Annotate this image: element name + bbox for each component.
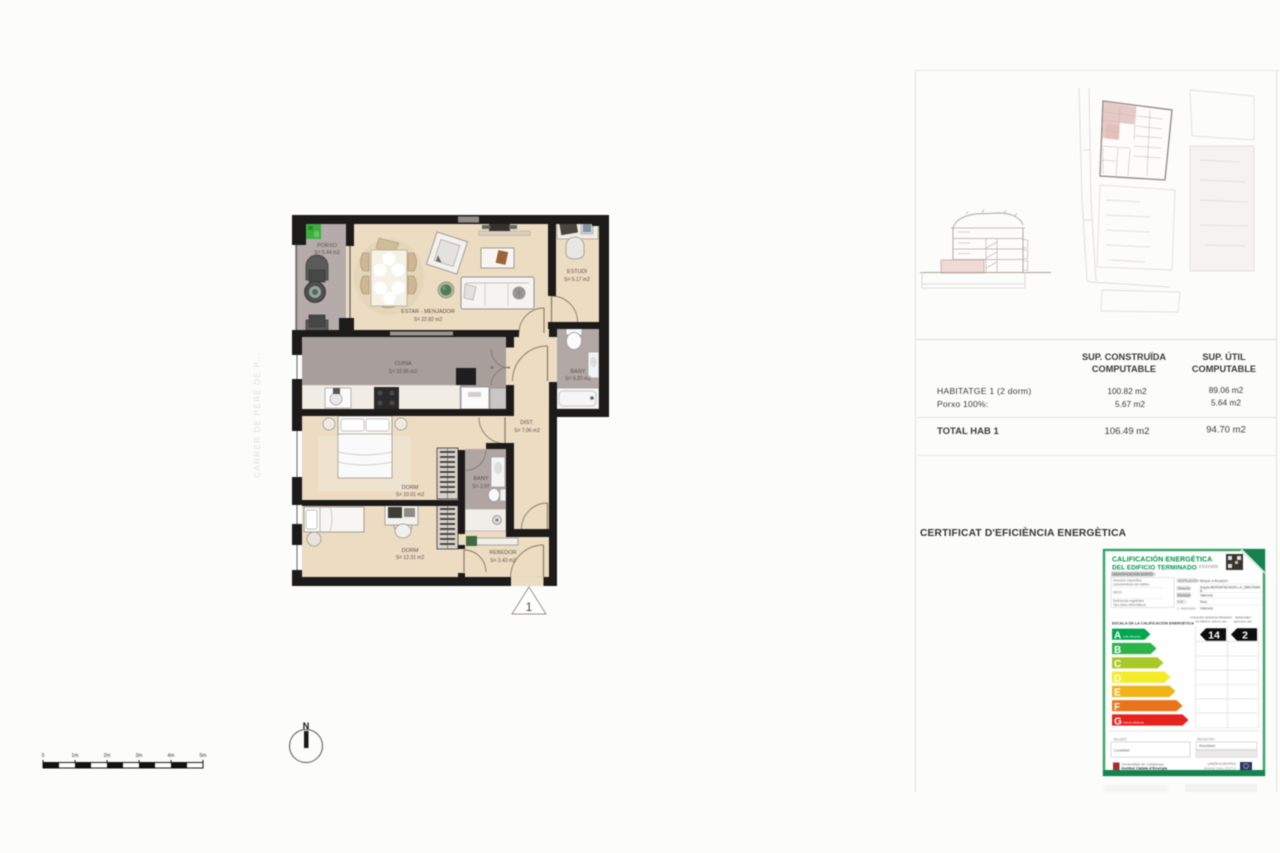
svg-text:CUINA: CUINA xyxy=(394,361,411,367)
svg-text:UNIÓN EUROPEA: UNIÓN EUROPEA xyxy=(1208,761,1237,766)
svg-text:Valencia: Valencia xyxy=(1200,593,1213,597)
svg-text:Tipo datos informáticos: Tipo datos informáticos xyxy=(1113,603,1146,607)
svg-text:CARRER DE PERE DE P...: CARRER DE PERE DE P... xyxy=(252,352,262,478)
svg-text:Bloque a fincación: Bloque a fincación xyxy=(1200,579,1228,583)
svg-text:BANY: BANY xyxy=(571,369,586,375)
svg-text:Valencia: Valencia xyxy=(1200,607,1213,611)
svg-text:más eficiente: más eficiente xyxy=(1123,635,1141,639)
svg-text:C.P.: C.P. xyxy=(1178,600,1184,604)
svg-text:TOTAL HAB 1: TOTAL HAB 1 xyxy=(937,426,999,437)
svg-text:S= 5.44 m2: S= 5.44 m2 xyxy=(314,250,340,256)
svg-text:VALIDEZ: VALIDEZ xyxy=(1113,738,1127,742)
svg-text:NO RENOV. kWh/m²·año: NO RENOV. kWh/m²·año xyxy=(1195,620,1227,624)
svg-text:COMPUTABLE: COMPUTABLE xyxy=(1092,364,1156,374)
svg-text:Localidad: Localidad xyxy=(1114,749,1129,753)
svg-text:Avgda.BERNATBOADELLA_08BCN964: Avgda.BERNATBOADELLA_08BCN964 xyxy=(1200,585,1260,589)
svg-text:COMPUTABLE: COMPUTABLE xyxy=(1192,364,1256,374)
svg-text:1: 1 xyxy=(526,602,532,614)
svg-text:VENTILACIÓN: VENTILACIÓN xyxy=(1178,578,1200,583)
svg-text:5.67 m2: 5.67 m2 xyxy=(1115,399,1145,409)
svg-text:5.64 m2: 5.64 m2 xyxy=(1211,398,1241,408)
svg-text:S= 4.20 m2: S= 4.20 m2 xyxy=(565,376,591,382)
svg-text:Situación: Situación xyxy=(1178,586,1191,590)
svg-text:Municipio: Municipio xyxy=(1178,593,1192,597)
svg-text:SUP. CONSTRUÏDA: SUP. CONSTRUÏDA xyxy=(1082,352,1166,362)
svg-text:3m: 3m xyxy=(136,753,143,759)
svg-text:106.49 m2: 106.49 m2 xyxy=(1105,426,1150,437)
svg-text:DORM: DORM xyxy=(402,548,419,554)
svg-text:S= 22.82 m2: S= 22.82 m2 xyxy=(414,317,443,323)
svg-text:89.06 m2: 89.06 m2 xyxy=(1209,385,1244,395)
svg-text:0: 0 xyxy=(42,753,45,759)
svg-text:G: G xyxy=(1114,716,1122,727)
svg-text:S= 10.85 m2: S= 10.85 m2 xyxy=(389,369,418,375)
svg-text:N: N xyxy=(303,721,310,731)
svg-text:HABITATGE 1 (2 dorm): HABITATGE 1 (2 dorm) xyxy=(937,386,1031,396)
svg-text:S= 5.17 m2: S= 5.17 m2 xyxy=(564,277,590,283)
svg-text:C: C xyxy=(1114,659,1121,670)
svg-text:B: B xyxy=(1114,645,1121,656)
svg-text:F: F xyxy=(1114,702,1120,713)
svg-text:IDENTIFICACIÓN EDIFICIO: IDENTIFICACIÓN EDIFICIO xyxy=(1113,572,1156,577)
svg-text:4m: 4m xyxy=(168,753,175,759)
svg-text:Porxo 100%:: Porxo 100%: xyxy=(937,399,988,409)
svg-text:menos eficiente: menos eficiente xyxy=(1123,721,1144,725)
svg-text:REBEDOR: REBEDOR xyxy=(489,550,516,556)
svg-text:DIST.: DIST. xyxy=(520,420,534,426)
svg-text:características del edificio: características del edificio xyxy=(1113,583,1150,587)
svg-text:DORM: DORM xyxy=(402,485,419,491)
svg-text:CERTIFICAT D'EFICIÈNCIA ENERGÈ: CERTIFICAT D'EFICIÈNCIA ENERGÈTICA xyxy=(920,526,1127,539)
svg-text:S= 7.06 m2: S= 7.06 m2 xyxy=(514,428,540,434)
svg-text:5m: 5m xyxy=(200,753,207,759)
svg-text:S= 10.01 m2: S= 10.01 m2 xyxy=(396,492,425,498)
svg-text:ESTAR - MENJADOR: ESTAR - MENJADOR xyxy=(401,309,455,315)
svg-text:2: 2 xyxy=(1242,630,1248,642)
svg-text:Resultado: Resultado xyxy=(1199,744,1215,748)
svg-text:S= 3.43 m2: S= 3.43 m2 xyxy=(490,558,516,564)
svg-text:C. Autónoma: C. Autónoma xyxy=(1177,607,1196,611)
svg-text:S= 12.31 m2: S= 12.31 m2 xyxy=(396,555,425,561)
svg-text:1m: 1m xyxy=(72,753,79,759)
svg-text:DEL EDIFICIO TERMINADO: DEL EDIFICIO TERMINADO xyxy=(1112,565,1197,572)
svg-text:S= 3.97: S= 3.97 xyxy=(472,484,490,490)
svg-text:CALIFICACIÓN ENERGÉTICA: CALIFICACIÓN ENERGÉTICA xyxy=(1112,555,1212,564)
svg-text:SUP. ÚTIL: SUP. ÚTIL xyxy=(1202,351,1246,362)
svg-text:2m: 2m xyxy=(104,753,111,759)
svg-text:D: D xyxy=(1114,673,1121,684)
svg-text:A: A xyxy=(1114,631,1121,642)
svg-text:ESCALA DE LA CALIFICACIÓN ENER: ESCALA DE LA CALIFICACIÓN ENERGÉTICA xyxy=(1112,621,1194,626)
svg-text:14: 14 xyxy=(1208,630,1220,642)
svg-text:ESTUDI: ESTUDI xyxy=(567,269,588,275)
svg-text:E: E xyxy=(1114,688,1121,699)
svg-text:100.82 m2: 100.82 m2 xyxy=(1107,386,1147,396)
svg-text:BANY: BANY xyxy=(474,476,489,482)
svg-text:Institut Català d'Energia: Institut Català d'Energia xyxy=(1122,766,1168,771)
svg-text:94.70 m2: 94.70 m2 xyxy=(1206,425,1246,436)
svg-text:EEDDBB: EEDDBB xyxy=(1199,564,1218,569)
svg-text:etiqueta mayo 2013 v2: etiqueta mayo 2013 v2 xyxy=(1204,767,1236,771)
svg-text:REGISTRO: REGISTRO xyxy=(1197,738,1215,742)
svg-text:08201: 08201 xyxy=(1113,591,1122,595)
svg-text:PORXO: PORXO xyxy=(317,243,338,249)
svg-text:Rest: Rest xyxy=(1200,600,1207,604)
svg-text:kgCO2/m²·año: kgCO2/m²·año xyxy=(1234,620,1253,624)
